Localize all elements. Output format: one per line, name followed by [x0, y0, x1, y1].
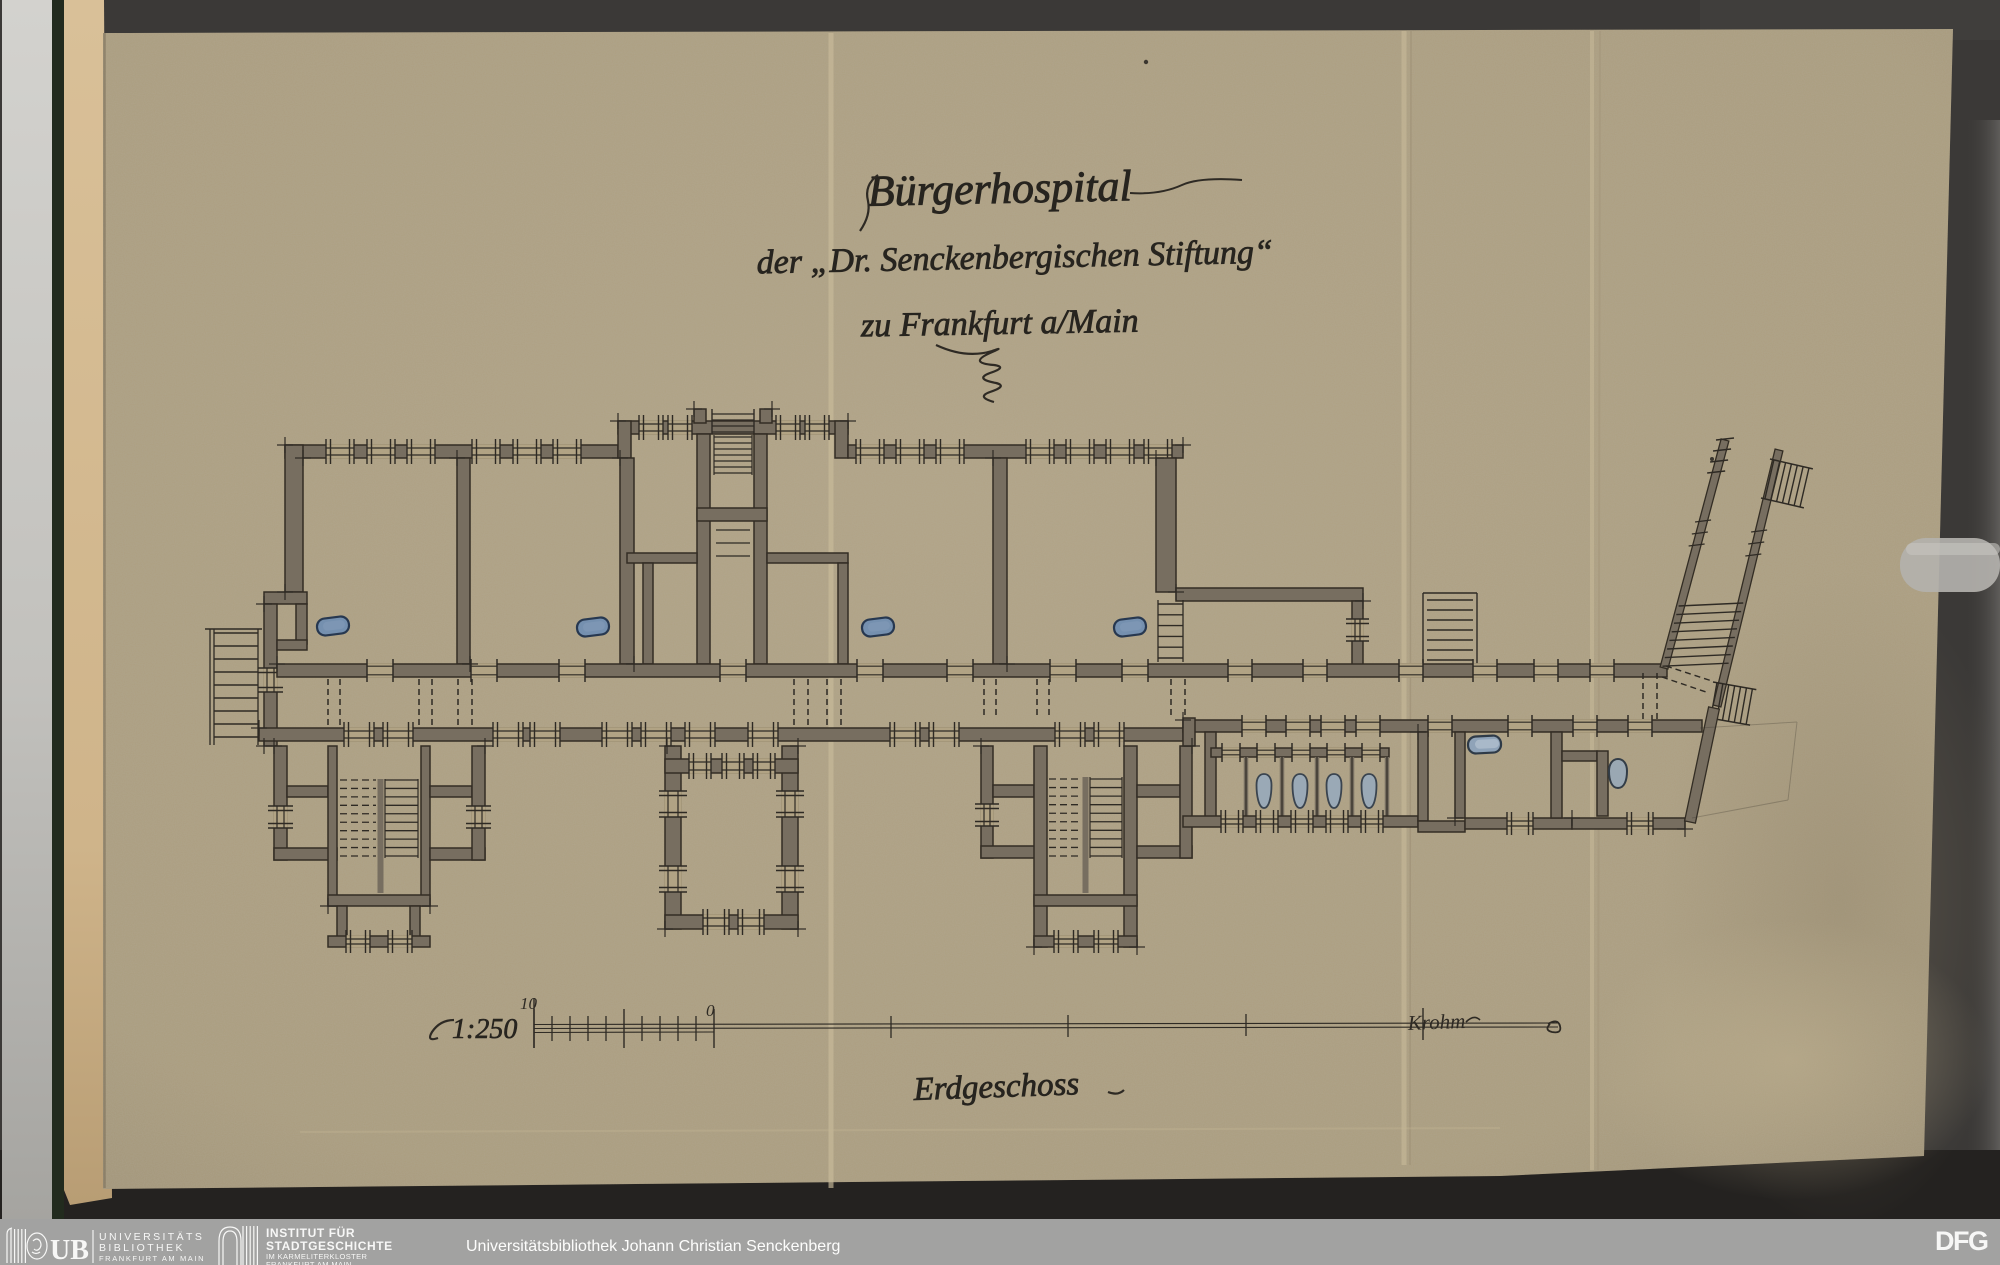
- svg-text:Krohm: Krohm: [1406, 1009, 1465, 1035]
- svg-text:FRANKFURT AM MAIN: FRANKFURT AM MAIN: [99, 1254, 205, 1263]
- svg-text:STADTGESCHICHTE: STADTGESCHICHTE: [266, 1239, 393, 1253]
- svg-text:DFG: DFG: [1935, 1226, 1988, 1256]
- svg-text:Bürgerhospital: Bürgerhospital: [867, 161, 1132, 216]
- svg-text:UB: UB: [50, 1235, 89, 1265]
- svg-text:Universitätsbibliothek Johann: Universitätsbibliothek Johann Christian …: [466, 1238, 840, 1255]
- svg-text:INSTITUT FÜR: INSTITUT FÜR: [266, 1225, 355, 1240]
- svg-text:FRANKFURT AM MAIN: FRANKFURT AM MAIN: [266, 1260, 352, 1265]
- svg-text:Erdgeschoss: Erdgeschoss: [912, 1066, 1080, 1108]
- svg-text:BIBLIOTHEK: BIBLIOTHEK: [99, 1242, 185, 1254]
- svg-text:1:250: 1:250: [452, 1014, 517, 1045]
- svg-text:zu Frankfurt a/Main: zu Frankfurt a/Main: [860, 303, 1139, 345]
- svg-text:10: 10: [520, 994, 538, 1013]
